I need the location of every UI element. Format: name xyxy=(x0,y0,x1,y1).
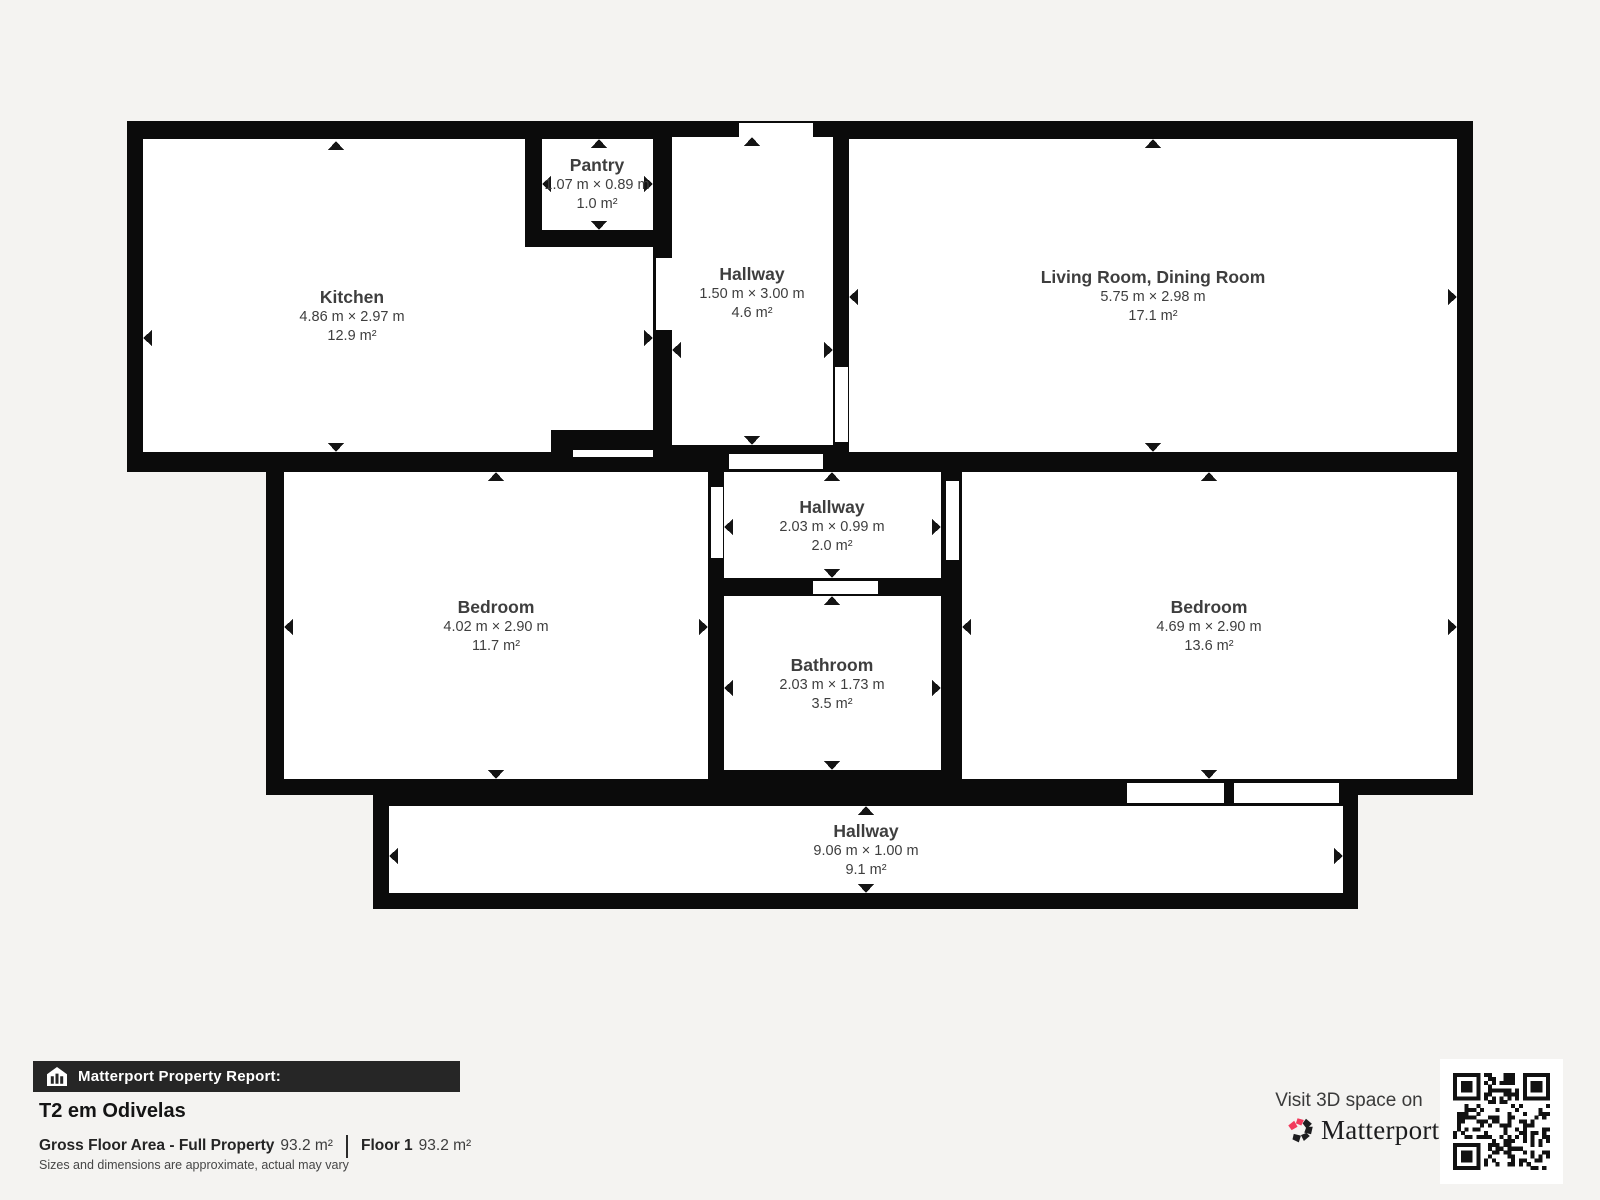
qr-module xyxy=(1465,1154,1469,1158)
qr-module xyxy=(1472,1073,1476,1077)
qr-module xyxy=(1453,1131,1457,1135)
qr-module xyxy=(1503,1151,1507,1155)
qr-module xyxy=(1453,1166,1457,1170)
qr-module xyxy=(1523,1151,1527,1155)
wall-pantry-left xyxy=(525,121,542,247)
qr-module xyxy=(1461,1143,1465,1147)
qr-module xyxy=(1546,1085,1550,1089)
qr-module xyxy=(1461,1073,1465,1077)
floor-label: Floor 1 xyxy=(361,1137,413,1155)
qr-module xyxy=(1515,1135,1519,1139)
qr-module xyxy=(1484,1096,1488,1100)
room-label-hallway-middle: Hallway 2.03 m × 0.99 m 2.0 m² xyxy=(779,496,884,556)
qr-module xyxy=(1500,1147,1504,1151)
qr-module xyxy=(1546,1096,1550,1100)
room-area: 4.6 m² xyxy=(699,304,804,323)
qr-module xyxy=(1480,1108,1484,1112)
qr-module xyxy=(1511,1073,1515,1077)
qr-module xyxy=(1488,1135,1492,1139)
qr-module xyxy=(1538,1096,1542,1100)
qr-module xyxy=(1457,1123,1461,1127)
qr-module xyxy=(1519,1120,1523,1124)
qr-module xyxy=(1476,1127,1480,1131)
room-name: Bedroom xyxy=(443,596,548,618)
qr-module xyxy=(1492,1120,1496,1124)
qr-module xyxy=(1542,1096,1546,1100)
qr-module xyxy=(1469,1108,1473,1112)
qr-module xyxy=(1457,1112,1461,1116)
qr-module xyxy=(1534,1166,1538,1170)
room-area: 9.1 m² xyxy=(813,861,918,880)
qr-module xyxy=(1465,1143,1469,1147)
qr-module xyxy=(1469,1154,1473,1158)
room-dimensions: 5.75 m × 2.98 m xyxy=(1041,288,1266,307)
qr-module xyxy=(1519,1104,1523,1108)
room-name: Bathroom xyxy=(779,654,884,676)
qr-module xyxy=(1492,1139,1496,1143)
qr-module xyxy=(1484,1073,1488,1077)
qr-module xyxy=(1453,1154,1457,1158)
matterport-logo: Matterport ' xyxy=(1287,1115,1443,1146)
qr-module xyxy=(1523,1131,1527,1135)
qr-module xyxy=(1523,1077,1527,1081)
room-label-living-dining: Living Room, Dining Room 5.75 m × 2.98 m… xyxy=(1041,266,1266,326)
qr-module xyxy=(1453,1135,1457,1139)
qr-module xyxy=(1476,1143,1480,1147)
gross-floor-area-label: Gross Floor Area - Full Property xyxy=(39,1137,274,1155)
qr-module xyxy=(1461,1096,1465,1100)
qr-module xyxy=(1472,1143,1476,1147)
qr-module xyxy=(1503,1131,1507,1135)
qr-module xyxy=(1461,1154,1465,1158)
qr-module xyxy=(1469,1096,1473,1100)
qr-module xyxy=(1476,1120,1480,1124)
matterport-floorplan-page: Kitchen 4.86 m × 2.97 m 12.9 m² Pantry 1… xyxy=(0,0,1600,1200)
room-label-bedroom-right: Bedroom 4.69 m × 2.90 m 13.6 m² xyxy=(1156,596,1261,656)
qr-module xyxy=(1527,1096,1531,1100)
room-area: 13.6 m² xyxy=(1156,637,1261,656)
qr-module xyxy=(1515,1092,1519,1096)
qr-module xyxy=(1476,1092,1480,1096)
qr-module xyxy=(1472,1108,1476,1112)
qr-module xyxy=(1531,1085,1535,1089)
qr-module xyxy=(1534,1131,1538,1135)
pinwheel-petal xyxy=(1292,1134,1300,1142)
qr-module xyxy=(1511,1147,1515,1151)
qr-module xyxy=(1534,1085,1538,1089)
qr-module xyxy=(1534,1116,1538,1120)
qr-module xyxy=(1511,1104,1515,1108)
qr-module xyxy=(1515,1147,1519,1151)
qr-module xyxy=(1484,1131,1488,1135)
qr-module xyxy=(1538,1158,1542,1162)
qr-module xyxy=(1484,1081,1488,1085)
qr-module xyxy=(1465,1112,1469,1116)
qr-module xyxy=(1503,1092,1507,1096)
qr-module xyxy=(1465,1104,1469,1108)
qr-module xyxy=(1546,1081,1550,1085)
room-name: Kitchen xyxy=(299,286,404,308)
qr-module xyxy=(1453,1147,1457,1151)
door-opening-hallway-bottom-2 xyxy=(1234,783,1339,803)
room-dimensions: 4.86 m × 2.97 m xyxy=(299,308,404,327)
qr-module xyxy=(1476,1077,1480,1081)
qr-module xyxy=(1476,1096,1480,1100)
qr-module xyxy=(1527,1073,1531,1077)
room-dimensions: 1.07 m × 0.89 m xyxy=(544,176,649,195)
qr-module xyxy=(1531,1135,1535,1139)
qr-module xyxy=(1534,1089,1538,1093)
qr-module xyxy=(1546,1135,1550,1139)
qr-module xyxy=(1476,1089,1480,1093)
qr-module xyxy=(1515,1108,1519,1112)
qr-module xyxy=(1457,1127,1461,1131)
qr-module xyxy=(1476,1112,1480,1116)
qr-module xyxy=(1538,1154,1542,1158)
qr-module xyxy=(1457,1143,1461,1147)
qr-module xyxy=(1542,1073,1546,1077)
qr-module xyxy=(1492,1151,1496,1155)
qr-module xyxy=(1534,1158,1538,1162)
qr-module xyxy=(1546,1073,1550,1077)
qr-module xyxy=(1546,1127,1550,1131)
qr-module xyxy=(1496,1120,1500,1124)
qr-module xyxy=(1480,1135,1484,1139)
qr-module xyxy=(1523,1081,1527,1085)
qr-module xyxy=(1503,1127,1507,1131)
room-dimensions: 4.69 m × 2.90 m xyxy=(1156,618,1261,637)
qr-module xyxy=(1472,1116,1476,1120)
qr-module xyxy=(1457,1120,1461,1124)
qr-module xyxy=(1453,1162,1457,1166)
room-area: 3.5 m² xyxy=(779,695,884,714)
qr-module xyxy=(1523,1158,1527,1162)
door-opening-bathroom xyxy=(813,581,878,594)
qr-module xyxy=(1461,1081,1465,1085)
qr-module xyxy=(1503,1077,1507,1081)
room-dimensions: 2.03 m × 0.99 m xyxy=(779,518,884,537)
qr-module xyxy=(1492,1089,1496,1093)
qr-module xyxy=(1507,1162,1511,1166)
room-name: Hallway xyxy=(813,820,918,842)
qr-module xyxy=(1542,1116,1546,1120)
door-opening-kitchen-south xyxy=(573,450,653,457)
pinwheel-petal xyxy=(1304,1127,1312,1135)
property-title: T2 em Odivelas xyxy=(39,1100,186,1123)
qr-module xyxy=(1523,1092,1527,1096)
qr-module xyxy=(1465,1166,1469,1170)
qr-module xyxy=(1453,1081,1457,1085)
room-area: 2.0 m² xyxy=(779,537,884,556)
qr-module xyxy=(1531,1154,1535,1158)
qr-module xyxy=(1496,1143,1500,1147)
report-house-icon xyxy=(47,1067,67,1086)
qr-module xyxy=(1542,1131,1546,1135)
qr-module xyxy=(1476,1166,1480,1170)
qr-module xyxy=(1476,1162,1480,1166)
qr-module xyxy=(1546,1151,1550,1155)
qr-module xyxy=(1531,1151,1535,1155)
qr-module xyxy=(1523,1085,1527,1089)
qr-module xyxy=(1476,1135,1480,1139)
qr-module xyxy=(1453,1073,1457,1077)
qr-module xyxy=(1507,1092,1511,1096)
room-area: 1.0 m² xyxy=(544,195,649,214)
qr-module xyxy=(1465,1085,1469,1089)
qr-module xyxy=(1531,1089,1535,1093)
qr-module xyxy=(1453,1158,1457,1162)
qr-module xyxy=(1511,1154,1515,1158)
qr-module xyxy=(1527,1162,1531,1166)
qr-module xyxy=(1496,1151,1500,1155)
qr-module xyxy=(1523,1073,1527,1077)
qr-module xyxy=(1523,1089,1527,1093)
qr-module xyxy=(1546,1139,1550,1143)
room-name: Hallway xyxy=(779,496,884,518)
qr-module xyxy=(1488,1077,1492,1081)
room-area: 12.9 m² xyxy=(299,327,404,346)
report-header-bar: Matterport Property Report: xyxy=(33,1061,460,1092)
qr-module xyxy=(1507,1139,1511,1143)
qr-module xyxy=(1523,1096,1527,1100)
qr-module xyxy=(1480,1120,1484,1124)
qr-module xyxy=(1484,1092,1488,1096)
room-label-bedroom-left: Bedroom 4.02 m × 2.90 m 11.7 m² xyxy=(443,596,548,656)
qr-module xyxy=(1538,1143,1542,1147)
qr-module xyxy=(1511,1158,1515,1162)
qr-module xyxy=(1465,1151,1469,1155)
qr-module xyxy=(1538,1089,1542,1093)
qr-module xyxy=(1484,1120,1488,1124)
qr-module xyxy=(1507,1135,1511,1139)
qr-module xyxy=(1531,1143,1535,1147)
qr-module xyxy=(1472,1166,1476,1170)
qr-module xyxy=(1488,1123,1492,1127)
qr-module xyxy=(1542,1166,1546,1170)
qr-module xyxy=(1476,1081,1480,1085)
qr-module xyxy=(1507,1143,1511,1147)
qr-module xyxy=(1534,1073,1538,1077)
qr-module xyxy=(1538,1112,1542,1116)
qr-module xyxy=(1476,1073,1480,1077)
qr-module xyxy=(1461,1085,1465,1089)
qr-module xyxy=(1492,1096,1496,1100)
floor-area-summary: Gross Floor Area - Full Property 93.2 m²… xyxy=(39,1134,471,1158)
qr-module xyxy=(1469,1085,1473,1089)
qr-module xyxy=(1500,1089,1504,1093)
qr-module xyxy=(1488,1116,1492,1120)
door-opening-bedroom-right xyxy=(946,481,959,560)
qr-module xyxy=(1507,1154,1511,1158)
qr-module xyxy=(1476,1154,1480,1158)
qr-module xyxy=(1488,1089,1492,1093)
qr-module xyxy=(1507,1077,1511,1081)
qr-module xyxy=(1531,1166,1535,1170)
qr-module xyxy=(1457,1166,1461,1170)
qr-module xyxy=(1453,1077,1457,1081)
qr-module xyxy=(1519,1162,1523,1166)
room-name: Living Room, Dining Room xyxy=(1041,266,1266,288)
qr-module xyxy=(1461,1116,1465,1120)
qr-module xyxy=(1496,1089,1500,1093)
qr-module xyxy=(1546,1112,1550,1116)
qr-module xyxy=(1488,1154,1492,1158)
qr-module xyxy=(1542,1151,1546,1155)
qr-module xyxy=(1507,1123,1511,1127)
qr-module xyxy=(1507,1089,1511,1093)
qr-module xyxy=(1469,1116,1473,1120)
room-label-hallway-bottom: Hallway 9.06 m × 1.00 m 9.1 m² xyxy=(813,820,918,880)
qr-module xyxy=(1465,1127,1469,1131)
qr-module xyxy=(1461,1166,1465,1170)
qr-module xyxy=(1496,1147,1500,1151)
qr-module xyxy=(1500,1096,1504,1100)
qr-module xyxy=(1511,1077,1515,1081)
room-dimensions: 2.03 m × 1.73 m xyxy=(779,676,884,695)
qr-module xyxy=(1519,1131,1523,1135)
qr-module xyxy=(1507,1120,1511,1124)
qr-module xyxy=(1531,1096,1535,1100)
qr-module xyxy=(1523,1123,1527,1127)
qr-module xyxy=(1496,1116,1500,1120)
door-opening-bedroom-left xyxy=(711,487,723,558)
room-name: Hallway xyxy=(699,263,804,285)
qr-module xyxy=(1500,1081,1504,1085)
qr-module xyxy=(1465,1158,1469,1162)
qr-module xyxy=(1453,1096,1457,1100)
qr-module xyxy=(1469,1143,1473,1147)
disclaimer-text: Sizes and dimensions are approximate, ac… xyxy=(39,1158,349,1172)
qr-module xyxy=(1457,1073,1461,1077)
qr-module xyxy=(1488,1073,1492,1077)
qr-module xyxy=(1515,1127,1519,1131)
qr-module xyxy=(1503,1089,1507,1093)
room-label-pantry: Pantry 1.07 m × 0.89 m 1.0 m² xyxy=(544,154,649,214)
qr-module xyxy=(1453,1085,1457,1089)
divider xyxy=(346,1135,348,1158)
qr-module xyxy=(1476,1151,1480,1155)
qr-module xyxy=(1488,1092,1492,1096)
qr-module xyxy=(1531,1123,1535,1127)
qr-module xyxy=(1465,1108,1469,1112)
qr-module xyxy=(1453,1089,1457,1093)
qr-code xyxy=(1453,1073,1550,1170)
qr-module xyxy=(1511,1139,1515,1143)
floor-value: 93.2 m² xyxy=(419,1137,472,1155)
qr-module xyxy=(1500,1100,1504,1104)
door-opening-hallway-bottom-1 xyxy=(1127,783,1224,803)
room-label-bathroom: Bathroom 2.03 m × 1.73 m 3.5 m² xyxy=(779,654,884,714)
door-opening-kitchen-hallway xyxy=(656,258,672,330)
qr-module xyxy=(1492,1100,1496,1104)
qr-module xyxy=(1531,1120,1535,1124)
door-opening-living-room xyxy=(835,367,848,442)
qr-module xyxy=(1469,1073,1473,1077)
matterport-wordmark: Matterport xyxy=(1321,1115,1439,1146)
qr-module xyxy=(1453,1092,1457,1096)
qr-module xyxy=(1496,1108,1500,1112)
qr-module xyxy=(1503,1073,1507,1077)
qr-module xyxy=(1507,1073,1511,1077)
qr-module xyxy=(1492,1077,1496,1081)
qr-module xyxy=(1480,1123,1484,1127)
qr-module xyxy=(1531,1139,1535,1143)
qr-module xyxy=(1472,1127,1476,1131)
qr-module xyxy=(1465,1073,1469,1077)
qr-module xyxy=(1465,1089,1469,1093)
qr-module xyxy=(1461,1120,1465,1124)
qr-module xyxy=(1534,1081,1538,1085)
qr-module xyxy=(1519,1158,1523,1162)
pinwheel-petal xyxy=(1296,1118,1304,1125)
qr-module xyxy=(1476,1104,1480,1108)
wall-kitchen-protrusion xyxy=(551,430,653,452)
qr-module xyxy=(1461,1158,1465,1162)
door-opening-hallway-top-north xyxy=(739,123,813,137)
qr-module xyxy=(1507,1096,1511,1100)
qr-module xyxy=(1538,1108,1542,1112)
qr-module xyxy=(1500,1123,1504,1127)
qr-module xyxy=(1492,1143,1496,1147)
qr-module xyxy=(1531,1073,1535,1077)
qr-module xyxy=(1538,1081,1542,1085)
qr-module xyxy=(1507,1147,1511,1151)
qr-module xyxy=(1484,1158,1488,1162)
gross-floor-area-value: 93.2 m² xyxy=(280,1137,333,1155)
room-dimensions: 4.02 m × 2.90 m xyxy=(443,618,548,637)
qr-module xyxy=(1476,1147,1480,1151)
qr-module xyxy=(1488,1147,1492,1151)
matterport-pinwheel-icon xyxy=(1287,1115,1314,1146)
qr-module xyxy=(1476,1158,1480,1162)
qr-module xyxy=(1511,1092,1515,1096)
qr-module xyxy=(1546,1092,1550,1096)
qr-module xyxy=(1542,1112,1546,1116)
qr-module xyxy=(1534,1096,1538,1100)
qr-module xyxy=(1511,1081,1515,1085)
room-name: Bedroom xyxy=(1156,596,1261,618)
qr-module xyxy=(1507,1151,1511,1155)
qr-module xyxy=(1476,1085,1480,1089)
qr-module xyxy=(1515,1096,1519,1100)
qr-module xyxy=(1519,1147,1523,1151)
qr-module xyxy=(1503,1081,1507,1085)
qr-module xyxy=(1484,1135,1488,1139)
qr-module xyxy=(1507,1112,1511,1116)
qr-module xyxy=(1500,1135,1504,1139)
qr-module xyxy=(1511,1116,1515,1120)
qr-module xyxy=(1496,1162,1500,1166)
qr-module xyxy=(1527,1123,1531,1127)
qr-module xyxy=(1503,1100,1507,1104)
qr-module xyxy=(1503,1143,1507,1147)
qr-module xyxy=(1453,1151,1457,1155)
qr-module xyxy=(1488,1085,1492,1089)
qr-module xyxy=(1492,1081,1496,1085)
qr-module xyxy=(1469,1151,1473,1155)
qr-module xyxy=(1453,1143,1457,1147)
qr-module xyxy=(1465,1081,1469,1085)
pinwheel-petal xyxy=(1288,1121,1297,1130)
room-area: 17.1 m² xyxy=(1041,307,1266,326)
room-label-hallway-top: Hallway 1.50 m × 3.00 m 4.6 m² xyxy=(699,263,804,323)
qr-module xyxy=(1507,1116,1511,1120)
qr-module xyxy=(1488,1100,1492,1104)
door-opening-hallways-connection xyxy=(729,454,823,469)
report-header-label: Matterport Property Report: xyxy=(78,1068,281,1085)
qr-module xyxy=(1538,1073,1542,1077)
qr-module xyxy=(1484,1162,1488,1166)
